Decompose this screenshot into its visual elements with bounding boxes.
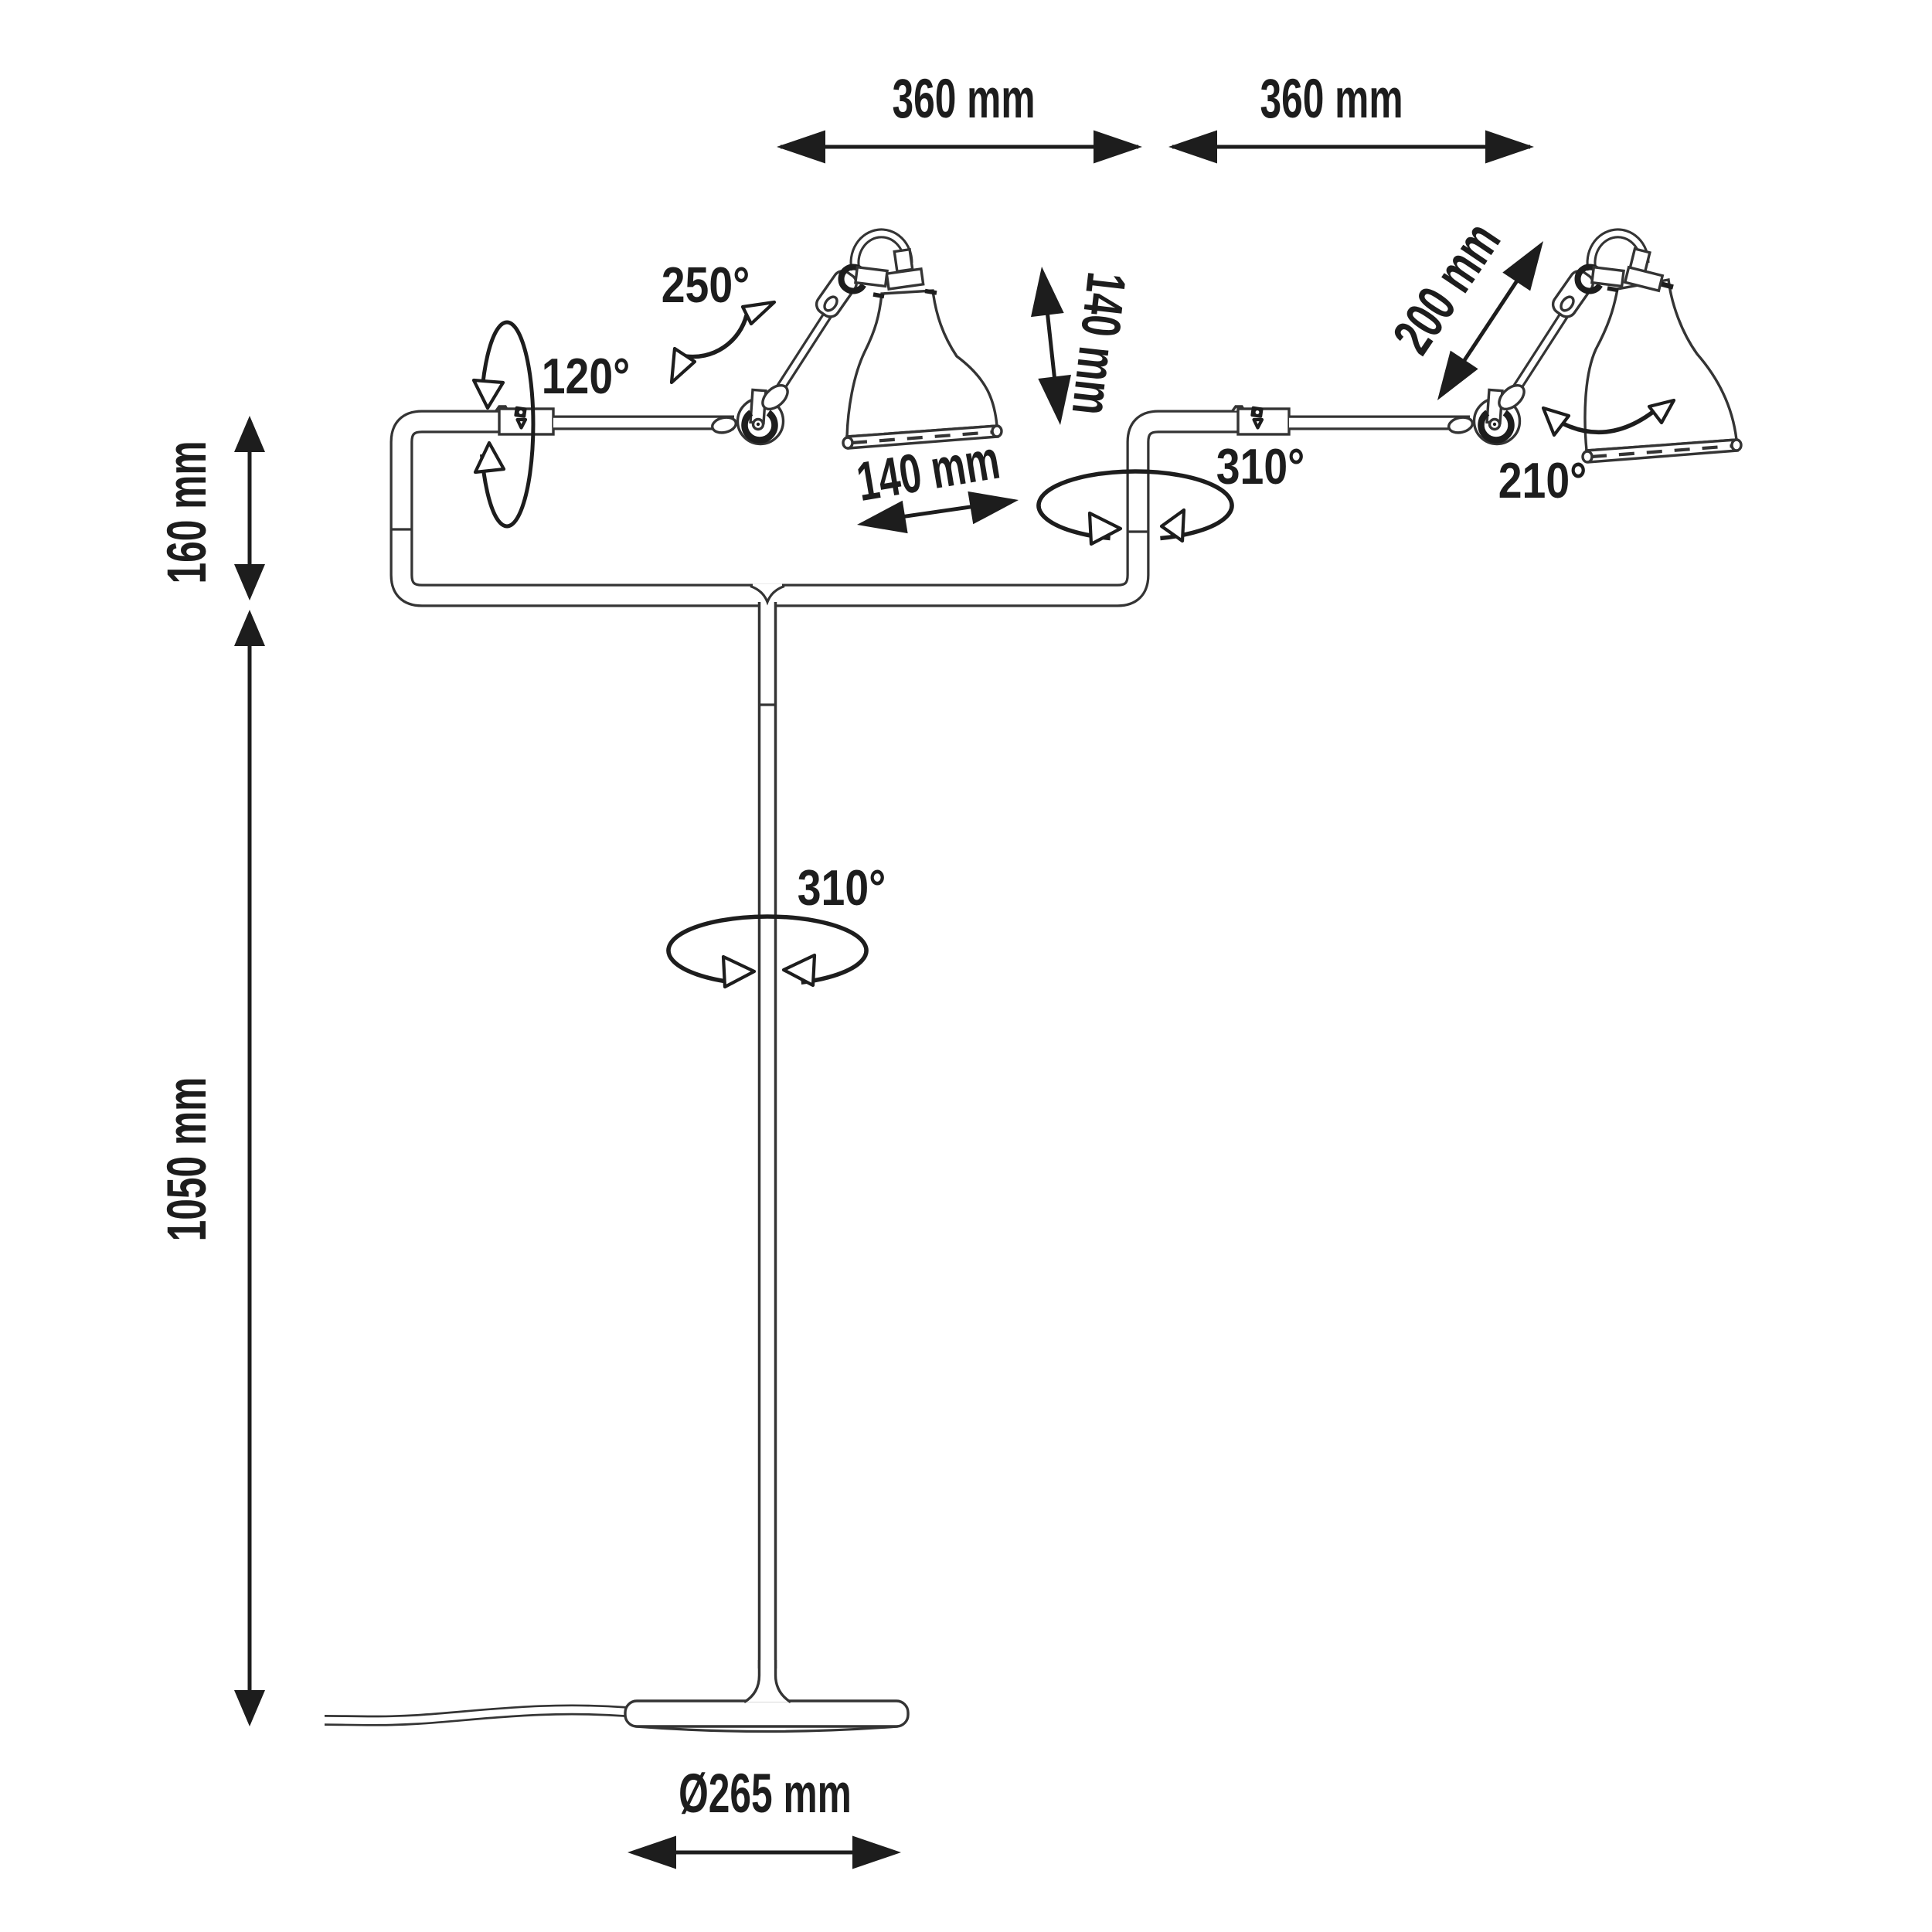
svg-text:1050 mm: 1050 mm (156, 1077, 217, 1242)
svg-text:120°: 120° (542, 348, 631, 404)
svg-text:160 mm: 160 mm (156, 440, 217, 583)
svg-text:360 mm: 360 mm (1260, 68, 1403, 129)
svg-text:Ø265 mm: Ø265 mm (679, 1763, 852, 1824)
svg-text:210°: 210° (1498, 452, 1587, 509)
svg-text:250°: 250° (662, 257, 750, 313)
svg-text:310°: 310° (798, 859, 886, 916)
svg-text:360 mm: 360 mm (892, 68, 1035, 129)
svg-text:310°: 310° (1216, 438, 1305, 495)
